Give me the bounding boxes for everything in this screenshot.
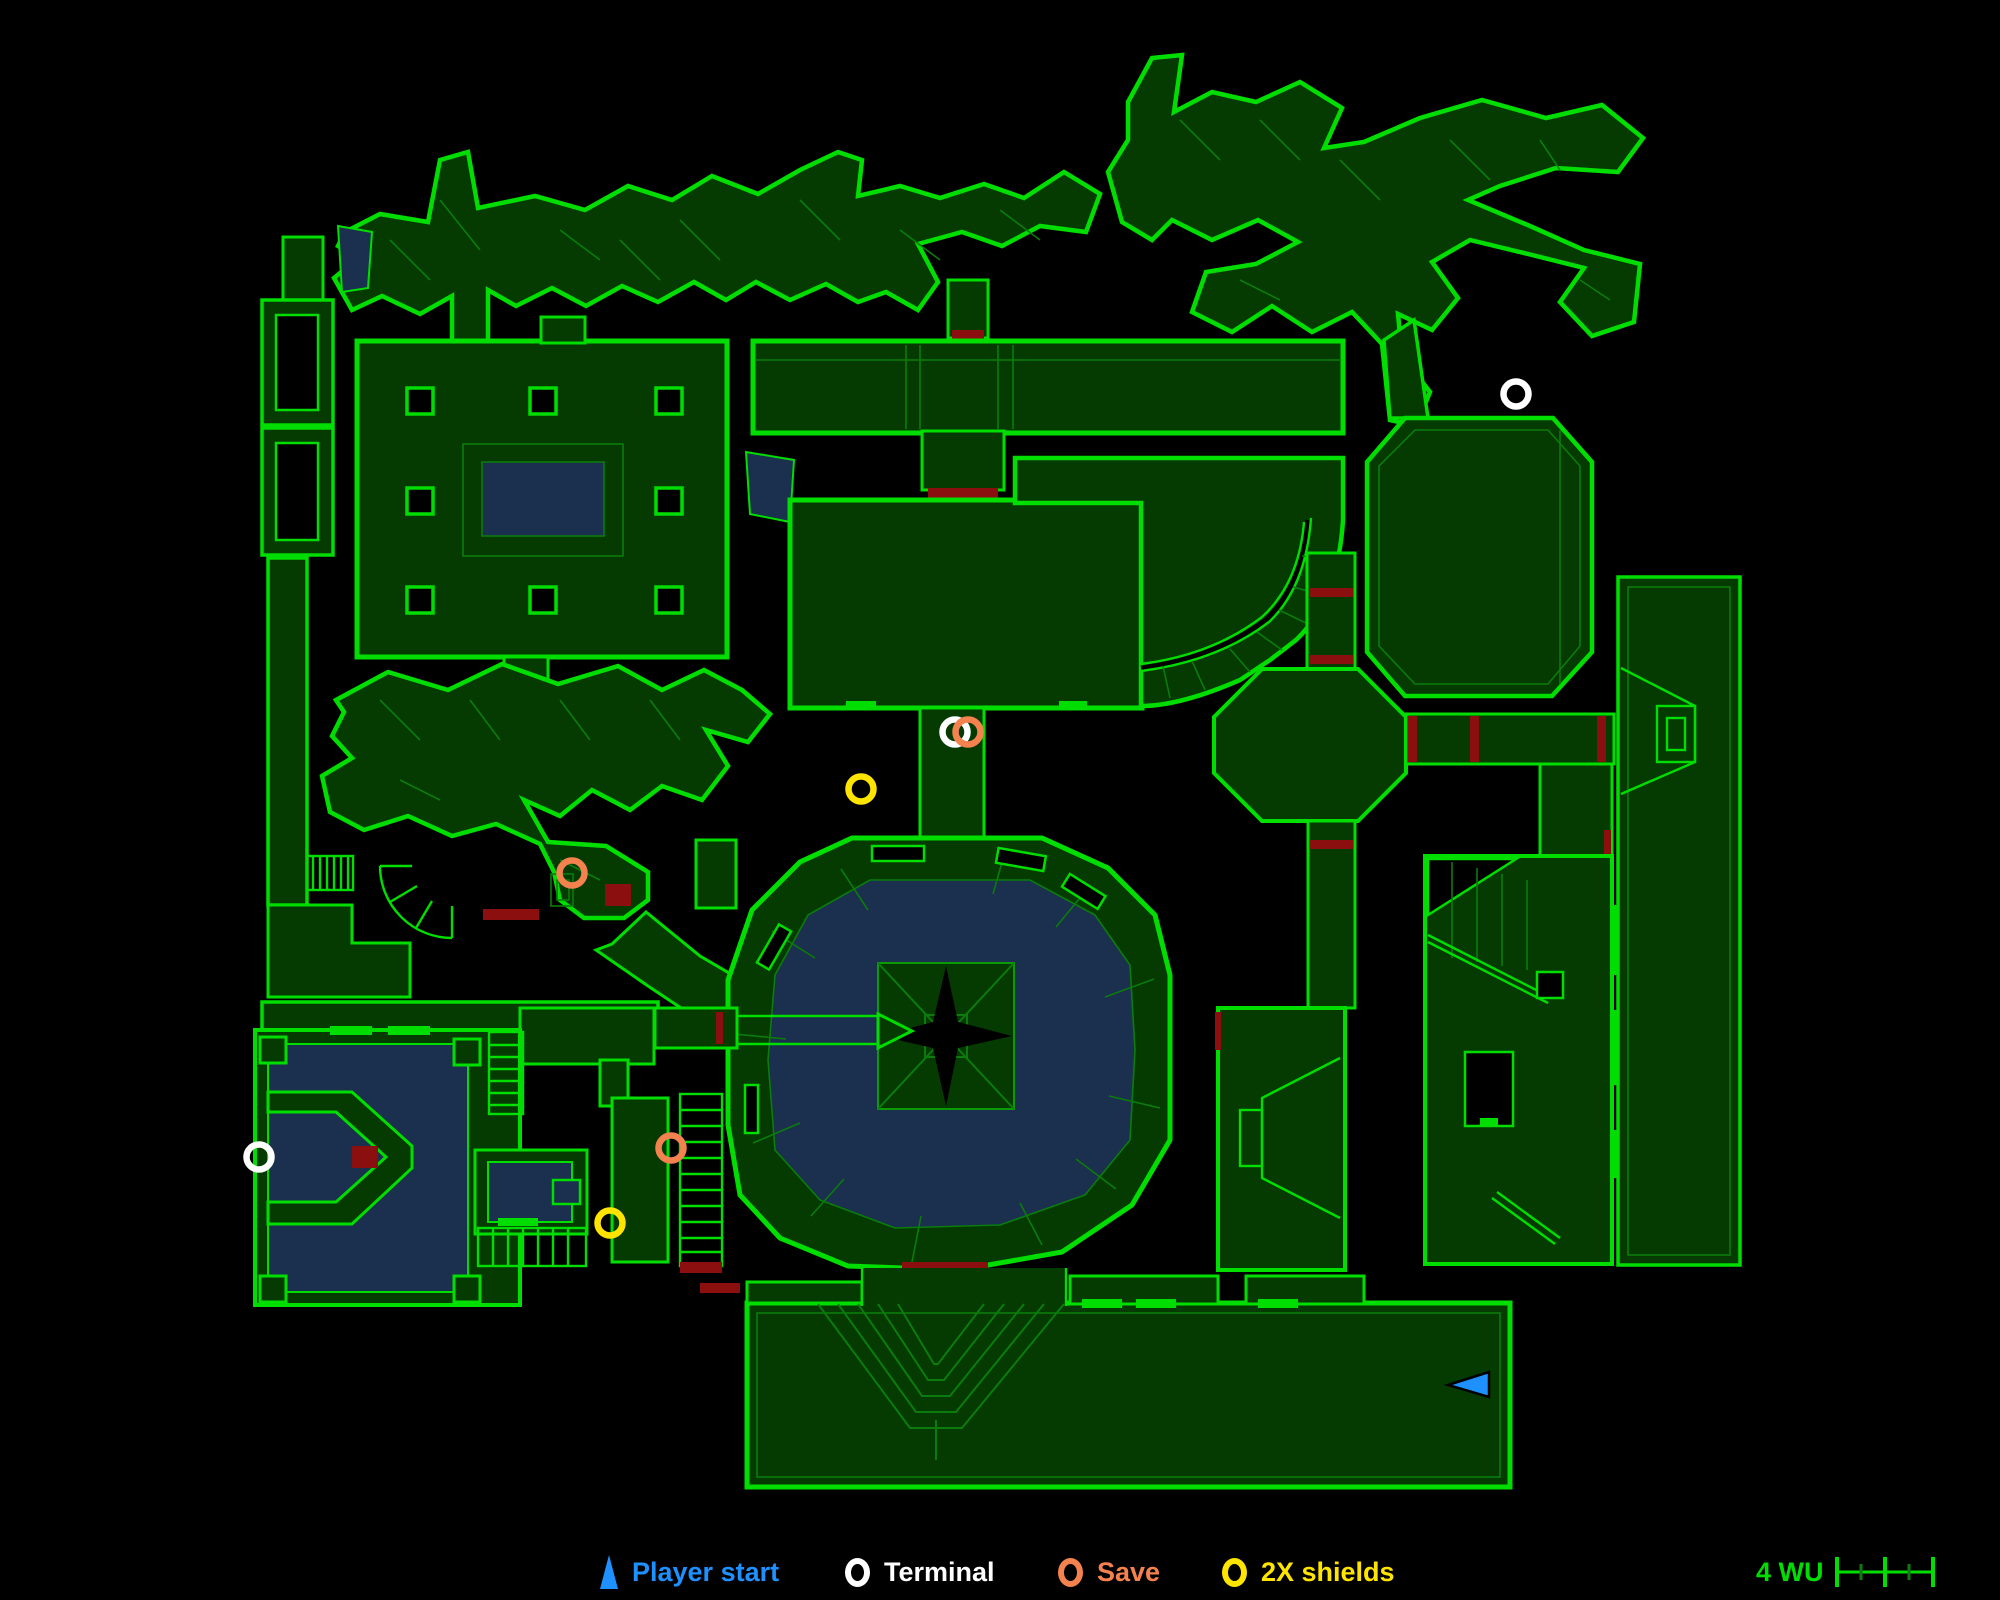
cave-north-west — [334, 152, 1100, 344]
pond-west — [338, 226, 372, 292]
junction-octagon — [1214, 669, 1406, 821]
marker-shields[interactable] — [849, 777, 874, 802]
stairway — [680, 1094, 722, 1266]
legend-item-player-start: Player start — [600, 1548, 779, 1596]
level-map-canvas[interactable] — [0, 0, 2000, 1600]
marker-terminal[interactable] — [1504, 382, 1529, 407]
map-viewer: Player start Terminal Save 2X shields 4 … — [0, 0, 2000, 1600]
room-center-big — [790, 500, 1142, 708]
octagon-room — [1367, 320, 1592, 696]
pool-pillar-hall — [482, 462, 604, 536]
terminal-icon — [845, 1558, 870, 1587]
pond-center — [746, 452, 794, 522]
scale-ruler-icon — [1834, 1552, 1938, 1592]
legend-item-terminal: Terminal — [845, 1548, 995, 1596]
legend-item-save: Save — [1058, 1548, 1160, 1596]
legend-label: Terminal — [884, 1557, 995, 1588]
arena — [655, 708, 1170, 1274]
southwest-complex — [255, 1026, 740, 1305]
save-icon — [1058, 1558, 1083, 1587]
legend: Player start Terminal Save 2X shields 4 … — [0, 1548, 2000, 1600]
scale-label: 4 WU — [1756, 1557, 1824, 1588]
map-scale: 4 WU — [1756, 1548, 1938, 1596]
south-hall — [747, 1268, 1510, 1487]
player-start-icon — [600, 1555, 618, 1589]
legend-label: 2X shields — [1261, 1557, 1395, 1588]
funnel-band-room — [1215, 1008, 1345, 1270]
shields-icon — [1222, 1558, 1247, 1587]
legend-label: Player start — [632, 1557, 779, 1588]
legend-item-2x-shields: 2X shields — [1222, 1548, 1395, 1596]
east-room — [1425, 764, 1612, 1264]
east-column — [1611, 577, 1740, 1265]
legend-label: Save — [1097, 1557, 1160, 1588]
